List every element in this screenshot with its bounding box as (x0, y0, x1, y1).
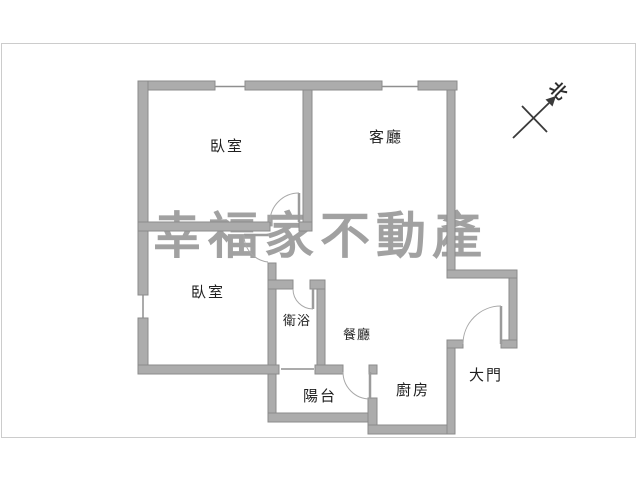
label-dining: 餐廳 (331, 329, 383, 343)
wall-dining-bottom (315, 365, 343, 374)
wall-bathroom-top-right (310, 280, 325, 289)
label-living: 客廳 (356, 129, 416, 145)
wall-bedroom2-right (268, 263, 276, 365)
wall-bedroom1-bottom (138, 222, 270, 231)
wall-top-left (138, 81, 215, 90)
label-bathroom: 衛浴 (271, 315, 323, 329)
label-entrance: 大門 (456, 367, 516, 383)
wall-kitchen-right (447, 342, 455, 434)
wall-top-right (418, 81, 457, 90)
wall-kitchen-bottom (368, 425, 455, 434)
wall-main-door-stub-right (501, 340, 517, 348)
wall-bedroom1-bottom-stub (299, 222, 312, 231)
door-arc-bedroom2 (244, 235, 268, 262)
label-balcony: 陽台 (290, 388, 350, 404)
wall-living-right (447, 90, 455, 275)
wall-vestibule-top (447, 270, 517, 278)
wall-bathroom-top-left (268, 280, 293, 289)
north-arrow-cross (522, 106, 547, 132)
wall-left-upper (138, 81, 148, 295)
wall-balcony-bottom (268, 413, 377, 422)
wall-bedroom2-bottom (138, 365, 279, 374)
wall-bedroom1-living (303, 90, 312, 222)
floor-plan-canvas: 幸福家不動產 (0, 0, 640, 480)
label-bedroom1: 臥室 (197, 138, 257, 154)
wall-main-door-stub-left (447, 340, 463, 348)
wall-vestibule-right (509, 278, 517, 348)
floor-plan-drawing (0, 0, 640, 480)
label-kitchen: 廚房 (383, 382, 443, 398)
label-bedroom2: 臥室 (178, 284, 238, 300)
door-arc-bedroom1 (270, 193, 299, 222)
north-arrow-shaft (513, 103, 549, 138)
north-arrow (513, 96, 556, 138)
door-arc-main (463, 306, 501, 344)
door-arc-bathroom (293, 289, 313, 309)
wall-top-middle (245, 81, 382, 90)
